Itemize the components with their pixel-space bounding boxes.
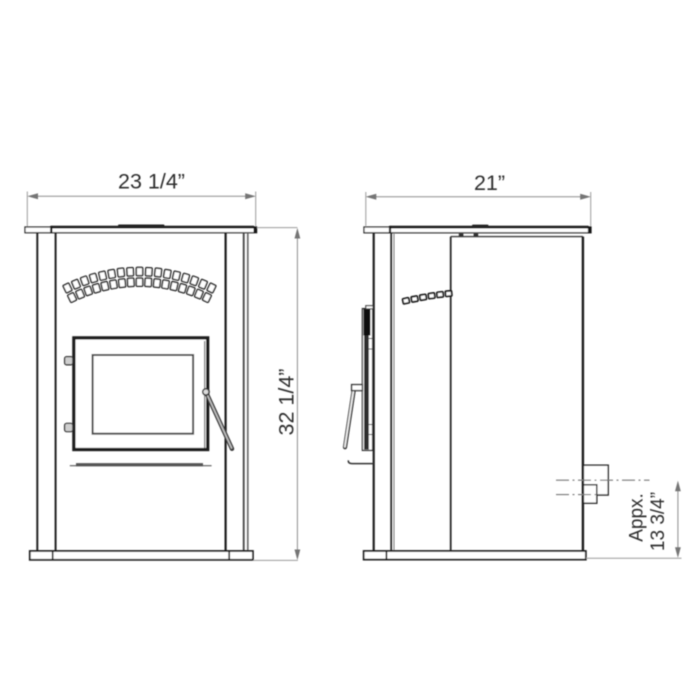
svg-text:32 1/4”: 32 1/4” [275, 369, 299, 436]
svg-text:Appx.: Appx. [627, 493, 648, 542]
svg-text:21”: 21” [474, 171, 505, 195]
svg-text:13 3/4”: 13 3/4” [648, 492, 669, 551]
svg-text:23 1/4”: 23 1/4” [118, 170, 185, 194]
